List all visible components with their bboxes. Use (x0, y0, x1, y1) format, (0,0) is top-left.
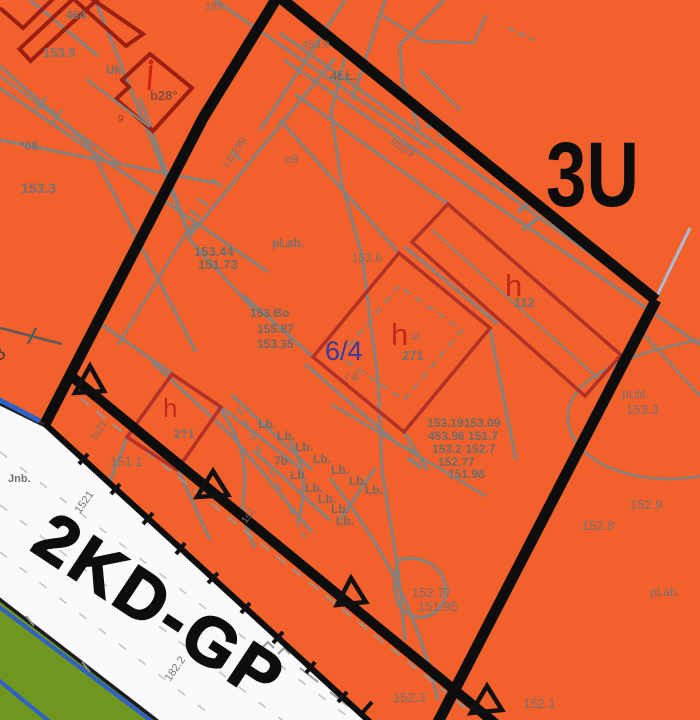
svg-text:pLab.: pLab. (272, 236, 304, 250)
svg-text:7b.: 7b. (274, 454, 291, 468)
svg-text:Lb.: Lb. (277, 429, 295, 443)
svg-text:Uk.: Uk. (106, 63, 125, 77)
svg-text:Lb.: Lb. (258, 417, 276, 431)
svg-text:9: 9 (118, 114, 124, 125)
svg-text:h: h (391, 317, 408, 352)
svg-text:153.Bo: 153.Bo (250, 306, 289, 320)
svg-text:Lb.: Lb. (331, 463, 349, 477)
svg-text:3U: 3U (546, 124, 639, 226)
svg-text:Lb.: Lb. (365, 483, 383, 497)
svg-text:453.9: 453.9 (302, 39, 330, 51)
svg-text:Lb.: Lb. (313, 452, 331, 466)
svg-text:155.87: 155.87 (257, 322, 294, 336)
svg-text:*08: *08 (20, 139, 38, 153)
svg-text:152.3: 152.3 (393, 690, 426, 705)
svg-text:152.1: 152.1 (523, 696, 556, 711)
svg-text:189: 189 (205, 1, 223, 13)
svg-text:153.9: 153.9 (43, 45, 76, 60)
svg-text:464: 464 (66, 8, 86, 22)
svg-text:Lb.: Lb. (295, 440, 313, 454)
svg-text:Lb.: Lb. (290, 468, 308, 482)
svg-text:b28°: b28° (150, 88, 178, 103)
svg-text:4ŁŁ.: 4ŁŁ. (330, 68, 357, 83)
svg-text:pLab.: pLab. (650, 585, 680, 599)
svg-text:Jnb.: Jnb. (8, 473, 31, 485)
svg-text:152.9: 152.9 (630, 497, 663, 512)
svg-text:152.8: 152.8 (582, 518, 615, 533)
svg-text:151.1: 151.1 (110, 454, 143, 469)
svg-text:6/4: 6/4 (325, 336, 363, 366)
svg-text:112: 112 (514, 295, 535, 310)
svg-text:153.35: 153.35 (257, 337, 294, 351)
svg-text:153.3: 153.3 (626, 402, 659, 417)
svg-text:Lb.: Lb. (336, 514, 354, 528)
svg-text:151.95: 151.95 (418, 599, 458, 614)
svg-text:153.2 152.7: 153.2 152.7 (432, 442, 496, 456)
svg-text:153.3: 153.3 (21, 180, 56, 196)
svg-text:o9: o9 (285, 152, 299, 166)
svg-text:pLbt.: pLbt. (622, 387, 649, 401)
svg-text:ul.: ul. (411, 331, 423, 343)
svg-text:453.96 151.7: 453.96 151.7 (428, 429, 498, 443)
svg-text:153.6: 153.6 (352, 251, 382, 265)
svg-text:2?1: 2?1 (174, 427, 195, 441)
svg-text:153.19153.09: 153.19153.09 (427, 416, 501, 430)
svg-text:271: 271 (402, 348, 424, 363)
svg-text:152.77: 152.77 (412, 585, 452, 600)
svg-text:151.73: 151.73 (198, 257, 238, 272)
svg-text:151.98: 151.98 (448, 467, 485, 481)
svg-text:h: h (163, 393, 177, 423)
svg-text:/ 4: / 4 (345, 370, 359, 384)
